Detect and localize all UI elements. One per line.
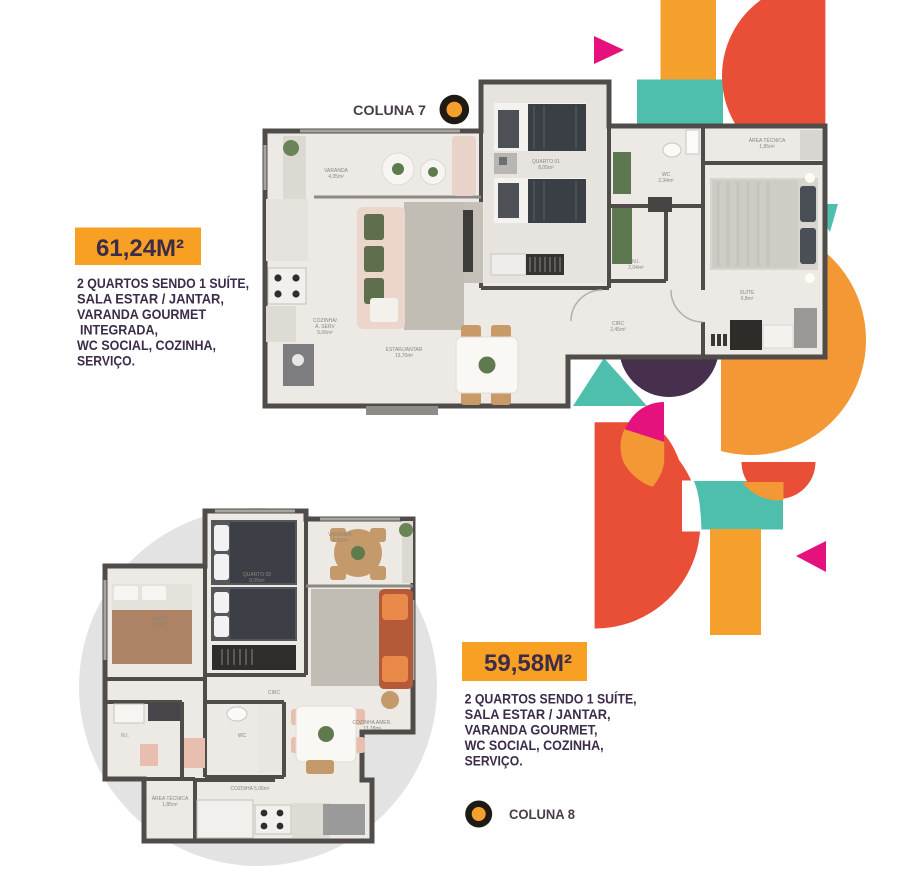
svg-text:5,06m²: 5,06m² xyxy=(317,330,333,336)
svg-text:8,05m²: 8,05m² xyxy=(249,578,265,584)
svg-text:WC: WC xyxy=(238,733,247,739)
svg-text:13,78m²: 13,78m² xyxy=(363,726,382,732)
svg-text:2 QUARTOS SENDO 1 SUÍTE,: 2 QUARTOS SENDO 1 SUÍTE, xyxy=(77,275,249,291)
svg-text:WC SOCIAL, COZINHA,: WC SOCIAL, COZINHA, xyxy=(465,737,604,753)
svg-text:2 QUARTOS SENDO 1 SUÍTE,: 2 QUARTOS SENDO 1 SUÍTE, xyxy=(465,691,637,707)
svg-text:WC SOCIAL, COZINHA,: WC SOCIAL, COZINHA, xyxy=(77,337,216,353)
svg-text:8,05m²: 8,05m² xyxy=(538,165,554,171)
svg-text:COZINHA 5,06m²: COZINHA 5,06m² xyxy=(230,786,270,792)
svg-text:2,45m²: 2,45m² xyxy=(610,327,626,333)
svg-text:N.I.: N.I. xyxy=(121,733,129,739)
svg-text:13,70m²: 13,70m² xyxy=(395,353,414,359)
svg-text:2,04m²: 2,04m² xyxy=(628,265,644,271)
svg-text:1,85m²: 1,85m² xyxy=(162,802,178,808)
svg-text:SUÍTE: SUÍTE xyxy=(740,289,755,296)
svg-text:2,34m²: 2,34m² xyxy=(658,178,674,184)
svg-text:VARANDA GOURMET: VARANDA GOURMET xyxy=(77,306,206,322)
svg-text:SALA ESTAR / JANTAR,: SALA ESTAR / JANTAR, xyxy=(465,706,611,722)
svg-text:SERVIÇO.: SERVIÇO. xyxy=(465,753,523,769)
svg-text:INTEGRADA,: INTEGRADA, xyxy=(80,322,158,338)
svg-text:61,24M²: 61,24M² xyxy=(96,235,184,262)
svg-text:COLUNA 7: COLUNA 7 xyxy=(353,102,426,118)
svg-text:4,35m²: 4,35m² xyxy=(332,538,348,544)
svg-text:1,85m²: 1,85m² xyxy=(759,144,775,150)
svg-text:Á. SERV: Á. SERV xyxy=(315,323,335,330)
svg-text:9,8m²: 9,8m² xyxy=(154,622,167,628)
svg-text:ÁREA TÉCNICA: ÁREA TÉCNICA xyxy=(152,795,189,802)
svg-text:SALA ESTAR / JANTAR,: SALA ESTAR / JANTAR, xyxy=(77,291,224,307)
svg-text:4,35m²: 4,35m² xyxy=(328,174,344,180)
svg-text:VARANDA GOURMET,: VARANDA GOURMET, xyxy=(465,722,598,738)
svg-text:CIRC: CIRC xyxy=(268,690,281,696)
svg-text:SUÍTE: SUÍTE xyxy=(153,615,168,622)
svg-text:ÁREA TÉCNICA: ÁREA TÉCNICA xyxy=(749,137,786,144)
svg-text:SERVIÇO.: SERVIÇO. xyxy=(77,353,135,369)
svg-text:59,58M²: 59,58M² xyxy=(484,650,572,677)
svg-text:COLUNA 8: COLUNA 8 xyxy=(509,806,575,822)
svg-text:9,8m²: 9,8m² xyxy=(741,296,754,302)
